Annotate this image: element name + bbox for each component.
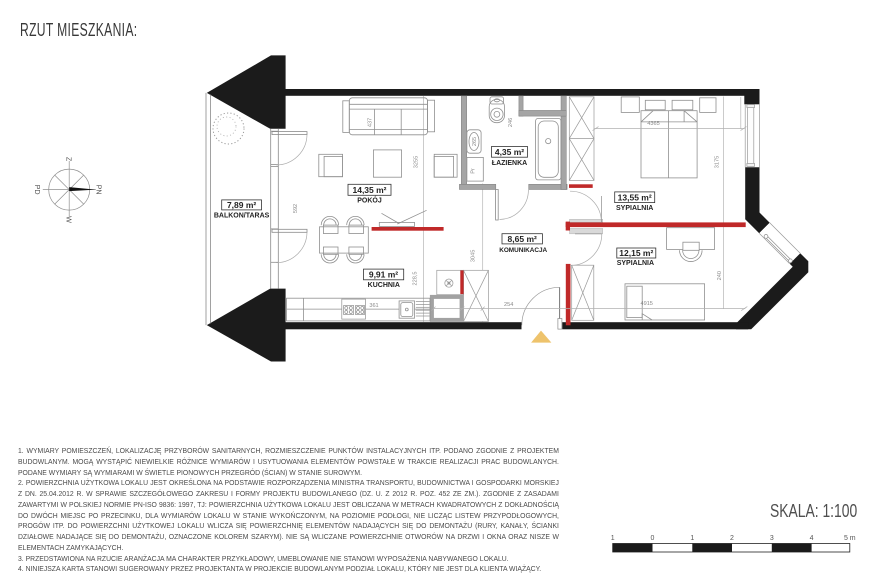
svg-text:4915: 4915 xyxy=(640,301,652,307)
svg-text:4365: 4365 xyxy=(647,121,659,127)
svg-text:8,65 m²: 8,65 m² xyxy=(508,234,537,244)
svg-text:3: 3 xyxy=(770,535,774,542)
svg-text:0: 0 xyxy=(651,535,655,542)
svg-text:13,55 m²: 13,55 m² xyxy=(618,192,652,202)
svg-text:ŁAZIENKA: ŁAZIENKA xyxy=(492,160,527,167)
svg-text:265: 265 xyxy=(472,137,478,146)
svg-text:3045: 3045 xyxy=(471,250,477,262)
svg-text:1: 1 xyxy=(690,535,694,542)
svg-text:PN: PN xyxy=(95,185,104,195)
svg-text:361: 361 xyxy=(369,303,378,309)
svg-text:Z: Z xyxy=(65,157,74,162)
svg-text:4,35 m²: 4,35 m² xyxy=(495,147,524,157)
svg-text:12,15 m²: 12,15 m² xyxy=(619,248,653,258)
svg-text:5 m: 5 m xyxy=(844,535,856,542)
svg-text:PD: PD xyxy=(33,185,42,195)
svg-text:SYPIALNIA: SYPIALNIA xyxy=(616,205,653,212)
svg-text:BALKON/TARAS: BALKON/TARAS xyxy=(214,213,270,220)
svg-text:240: 240 xyxy=(717,271,723,280)
svg-text:KUCHNIA: KUCHNIA xyxy=(368,282,400,289)
svg-text:POKÓJ: POKÓJ xyxy=(357,196,382,205)
svg-text:Pr: Pr xyxy=(471,168,477,174)
svg-text:2: 2 xyxy=(730,535,734,542)
svg-text:W: W xyxy=(65,216,74,223)
svg-text:9,91 m²: 9,91 m² xyxy=(369,270,398,280)
svg-text:SYPIALNIA: SYPIALNIA xyxy=(617,260,654,267)
svg-text:228,5: 228,5 xyxy=(413,272,419,286)
svg-text:592: 592 xyxy=(293,204,299,213)
svg-text:254: 254 xyxy=(504,302,513,308)
svg-text:1: 1 xyxy=(611,535,615,542)
svg-text:7,89 m²: 7,89 m² xyxy=(227,200,256,210)
svg-text:KOMUNIKACJA: KOMUNIKACJA xyxy=(499,247,547,254)
svg-text:3255: 3255 xyxy=(414,156,420,168)
svg-text:437: 437 xyxy=(368,118,374,127)
svg-text:4: 4 xyxy=(810,535,814,542)
svg-text:3175: 3175 xyxy=(714,156,720,168)
svg-text:246: 246 xyxy=(508,118,514,127)
svg-text:14,35 m²: 14,35 m² xyxy=(352,185,386,195)
